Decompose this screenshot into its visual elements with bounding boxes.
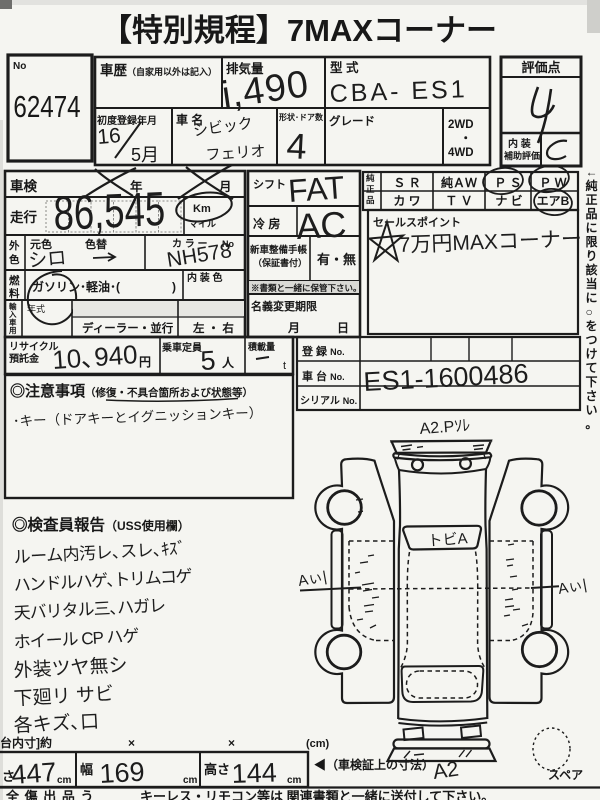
svg-text:各キズ､口: 各キズ､口 [13,711,100,737]
svg-text:年式: 年式 [27,303,45,314]
svg-text:←純正品に限り該当に○をつけて下さい｡: ←純正品に限り該当に○をつけて下さい｡ [586,165,598,431]
svg-text:日: 日 [337,321,349,335]
svg-text:評価点: 評価点 [521,60,560,75]
svg-text:×: × [128,736,135,750]
svg-text:カ ワ: カ ワ [393,194,420,208]
svg-text:トビA: トビA [427,530,468,550]
svg-text:品: 品 [366,195,375,205]
svg-text:・: ・ [460,133,472,145]
svg-text:(cm): (cm) [306,738,330,750]
svg-text:62474: 62474 [13,89,80,124]
svg-text:高さ: 高さ [204,762,230,777]
svg-text:cm: cm [183,775,198,786]
svg-text:シロ: シロ [28,248,68,272]
svg-text:10､940: 10､940 [51,339,138,375]
svg-text:CBA- ES1: CBA- ES1 [329,75,468,108]
svg-text:447: 447 [10,757,57,790]
svg-text:内 装 色: 内 装 色 [187,271,223,284]
svg-text:外: 外 [8,239,20,252]
svg-text:車 台 No.: 車 台 No. [302,369,345,383]
svg-text:169: 169 [99,757,146,789]
svg-text:※書類と一緒に保管下さい。: ※書類と一緒に保管下さい。 [251,283,362,293]
svg-text:グレード: グレード [329,114,375,128]
svg-text:純ＡＷ: 純ＡＷ [441,175,477,190]
svg-text:シフト: シフト [253,178,286,191]
svg-text:純: 純 [366,173,375,183]
svg-text:86,545: 86,545 [53,182,166,241]
svg-text:預託金: 預託金 [9,352,40,365]
svg-text:16: 16 [96,124,121,149]
svg-text:144: 144 [231,757,277,789]
svg-text:乗車定員: 乗車定員 [161,341,202,354]
svg-text:色替: 色替 [85,237,108,251]
svg-text:A2.Pｿﾚ: A2.Pｿﾚ [419,417,471,437]
svg-text:×: × [228,736,235,750]
svg-text:A2: A2 [431,758,460,784]
svg-text:エアB: エアB [537,194,570,208]
svg-text:4WD: 4WD [448,147,474,159]
svg-text:シリアル No.: シリアル No. [300,395,357,407]
svg-text:人: 人 [222,355,235,370]
svg-text:t: t [283,360,286,372]
svg-text:有・無: 有・無 [317,252,356,267]
svg-text:Ｓ Ｒ: Ｓ Ｒ [393,176,420,190]
svg-text:左 ・ 右: 左 ・ 右 [192,321,234,335]
svg-text:形状･ドア数: 形状･ドア数 [279,112,324,122]
svg-text:): ) [172,280,176,294]
svg-text:料: 料 [9,287,20,300]
svg-text:新車整備手帳: 新車整備手帳 [250,244,308,256]
svg-text:燃: 燃 [9,274,20,287]
svg-text:（保証書付）: （保証書付） [253,257,307,268]
svg-text:Km: Km [193,203,211,215]
svg-text:cm: cm [57,775,72,786]
svg-text:型 式: 型 式 [330,60,359,75]
svg-text:AC: AC [295,203,347,247]
svg-text:Ｔ Ｖ: Ｔ Ｖ [445,194,472,208]
svg-text:ディーラー・並行: ディーラー・並行 [82,321,174,335]
svg-text:用: 用 [9,326,17,335]
svg-text:No: No [13,61,26,72]
svg-text:正: 正 [366,184,375,194]
svg-text:台内寸]約: 台内寸]約 [0,735,52,750]
svg-text:円: 円 [139,355,151,369]
svg-text:5: 5 [200,345,217,376]
svg-text:冷 房: 冷 房 [253,216,280,231]
svg-text:【特別規程】7MAXコーナー: 【特別規程】7MAXコーナー [101,13,497,48]
svg-text:cm: cm [287,775,302,786]
svg-text:月: 月 [287,321,300,335]
svg-text:2WD: 2WD [448,119,474,131]
svg-text:名義変更期限: 名義変更期限 [251,299,317,313]
svg-text:◀（車検証上の寸法）: ◀（車検証上の寸法） [314,757,434,772]
svg-text:4: 4 [286,125,308,167]
svg-text:積載量: 積載量 [247,341,275,352]
svg-text:ナ ビ: ナ ビ [495,193,522,208]
svg-text:5月: 5月 [131,145,159,165]
svg-text:キーレス・リモコン等は 関連書類と一緒に送付して下さい。: キーレス・リモコン等は 関連書類と一緒に送付して下さい。 [140,789,494,800]
svg-text:車検: 車検 [10,178,37,194]
svg-text:登 録 No.: 登 録 No. [301,344,345,358]
svg-text:補助評価: 補助評価 [503,150,540,161]
svg-text:全 傷 出 品 う: 全 傷 出 品 う [5,789,94,800]
svg-text:幅: 幅 [80,762,93,777]
svg-text:走行: 走行 [10,209,37,225]
svg-text:内 装: 内 装 [508,137,531,150]
svg-text:色: 色 [9,253,20,266]
